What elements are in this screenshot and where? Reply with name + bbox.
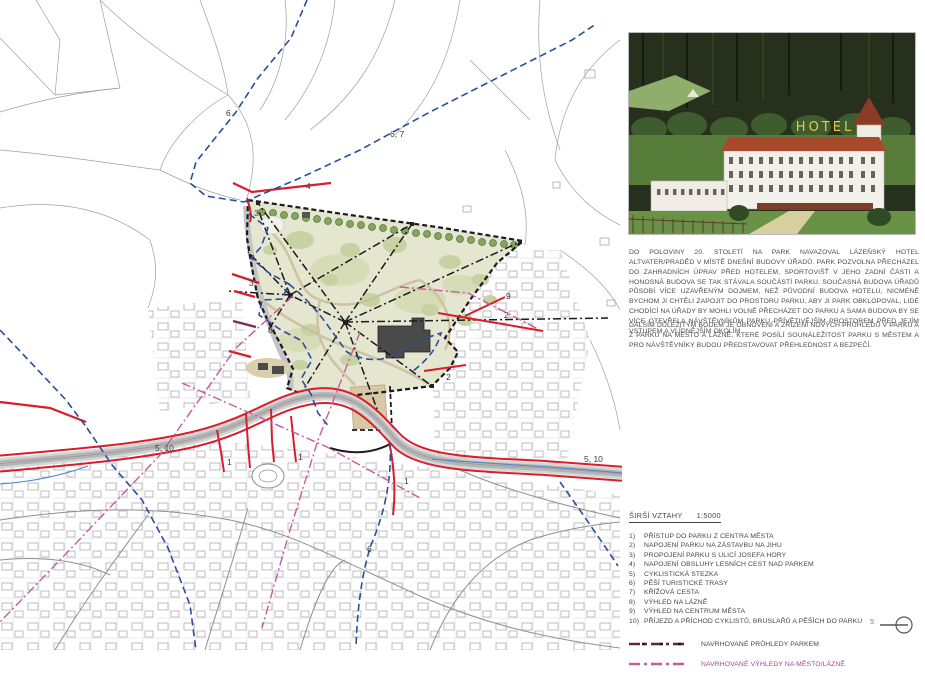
legend-item-label: PŘÍSTUP DO PARKU Z CENTRA MĚSTA [644, 532, 774, 541]
site-plan-map: 6 6, 7 4 3 3 8 9 2 2 5, 10 5, 10 1 1 1 6 [0, 0, 622, 650]
legend-title: ŠIRŠÍ VZTAHY1:5000 [629, 511, 721, 523]
historic-hotel-photo: HOTEL [628, 32, 916, 235]
map-label-2b: 2 [446, 372, 451, 382]
legend-item-8: 8)VÝHLED NA LÁZNĚ [629, 598, 920, 607]
legend-item-3: 3)PROPOJENÍ PARKU S ULICÍ JOSEFA HORY [629, 551, 920, 560]
map-label-2a: 2 [504, 310, 509, 320]
legend-item-label: PŘÍJEZD A PŘÍCHOD CYKLISTŮ, BRUSLAŘŮ A P… [644, 617, 862, 626]
legend-item-6: 6)PĚŠÍ TURISTICKÉ TRASY [629, 579, 920, 588]
legend-item-label: CYKLISTICKÁ STEZKA [644, 570, 718, 579]
page-footer: 5 [864, 610, 920, 640]
map-label-510b: 5, 10 [584, 454, 603, 464]
legend-line-samples: NAVRHOVANÉ PRŮHLEDY PARKEM NAVRHOVANÉ VÝ… [629, 634, 920, 674]
dashdot-sample-magenta [629, 661, 687, 667]
map-label-6b: 6 [367, 544, 372, 554]
hotel-roof [721, 137, 887, 151]
legend-item-num: 3) [629, 551, 644, 560]
map-canvas: 6 6, 7 4 3 3 8 9 2 2 5, 10 5, 10 1 1 1 6 [0, 0, 622, 650]
small-structure [302, 212, 310, 218]
legend-item-label: VÝHLED NA LÁZNĚ [644, 598, 707, 607]
map-label-3b: 3 [249, 278, 254, 288]
map-label-3a: 3 [254, 208, 259, 218]
right-panel: HOTEL DO POLOVINY 20. STOLETÍ NA PARK NA… [628, 0, 920, 650]
map-label-1a: 1 [227, 457, 232, 467]
hotel-sign: HOTEL [796, 120, 854, 135]
entrance-plaza [260, 216, 284, 234]
dashdot-sample-dark-red [629, 641, 687, 647]
legend-item-num: 4) [629, 560, 644, 569]
paragraph-views: DALŠÍM DŮLEŽITÝM BODEM JE OBNOVENÍ A ZŘÍ… [629, 321, 919, 351]
lawn-tree [729, 205, 749, 221]
pavilion-1 [258, 363, 268, 370]
map-label-4: 4 [306, 181, 311, 191]
legend-item-label: KŘÍŽOVÁ CESTA [644, 588, 699, 597]
document-page: 6 6, 7 4 3 3 8 9 2 2 5, 10 5, 10 1 1 1 6 [0, 0, 925, 650]
legend-title-text: ŠIRŠÍ VZTAHY [629, 511, 683, 520]
legend-line-label: NAVRHOVANÉ PRŮHLEDY PARKEM [701, 641, 819, 648]
map-label-1c: 1 [404, 476, 409, 486]
legend-line-label: NAVRHOVANÉ VÝHLEDY NA MĚSTO/LÁZNĚ [701, 661, 845, 668]
annex-windows [657, 189, 724, 195]
map-label-8: 8 [268, 325, 273, 335]
hotel-main-block [724, 151, 884, 209]
map-label-67: 6, 7 [390, 129, 404, 139]
legend-item-4: 4)NAPOJENÍ OBSLUHY LESNÍCH CEST NAD PARK… [629, 560, 920, 569]
legend-item-1: 1)PŘÍSTUP DO PARKU Z CENTRA MĚSTA [629, 532, 920, 541]
hotel-annex [651, 181, 727, 211]
legend-block: ŠIRŠÍ VZTAHY1:5000 1)PŘÍSTUP DO PARKU Z … [629, 505, 920, 674]
page-number: 5 [870, 619, 874, 626]
legend-item-num: 5) [629, 570, 644, 579]
veranda-roof [757, 203, 873, 210]
legend-item-label: PROPOJENÍ PARKU S ULICÍ JOSEFA HORY [644, 551, 786, 560]
legend-item-label: NAPOJENÍ OBSLUHY LESNÍCH CEST NAD PARKEM [644, 560, 814, 569]
legend-line-vyhledy: NAVRHOVANÉ VÝHLEDY NA MĚSTO/LÁZNĚ [629, 654, 920, 674]
legend-item-num: 8) [629, 598, 644, 607]
legend-scale: 1:5000 [697, 511, 721, 520]
map-label-510a: 5, 10 [155, 443, 174, 453]
legend-item-num: 2) [629, 541, 644, 550]
legend-item-5: 5)CYKLISTICKÁ STEZKA [629, 570, 920, 579]
legend-item-label: NAPOJENÍ PARKU NA ZÁSTAVBU NA JIHU [644, 541, 782, 550]
map-label-6a: 6 [226, 108, 231, 118]
legend-item-7: 7)KŘÍŽOVÁ CESTA [629, 588, 920, 597]
legend-item-num: 9) [629, 607, 644, 616]
legend-item-2: 2)NAPOJENÍ PARKU NA ZÁSTAVBU NA JIHU [629, 541, 920, 550]
legend-item-label: PĚŠÍ TURISTICKÉ TRASY [644, 579, 728, 588]
compass-logo-icon [878, 610, 920, 640]
legend-item-num: 1) [629, 532, 644, 541]
pavilion-2 [272, 366, 284, 374]
legend-item-num: 7) [629, 588, 644, 597]
legend-item-num: 10) [629, 617, 644, 626]
lawn-tree-2 [867, 208, 891, 226]
legend-item-label: VÝHLED NA CENTRUM MĚSTA [644, 607, 745, 616]
map-label-9: 9 [506, 291, 511, 301]
map-label-1b: 1 [298, 452, 303, 462]
legend-item-num: 6) [629, 579, 644, 588]
